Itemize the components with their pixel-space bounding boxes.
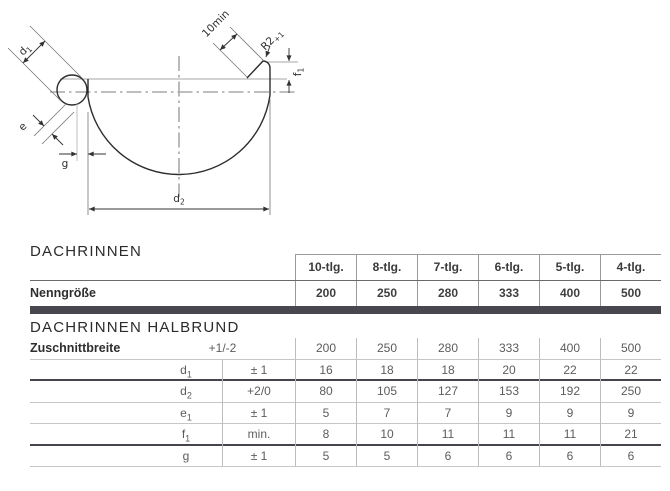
row-label [30, 446, 150, 467]
e-dimension-arrow [33, 115, 44, 126]
tolerance-value: +1/-2 [150, 338, 295, 359]
size-column-header: 4-tlg. [600, 255, 661, 280]
nenngroesse-row: Nenngröße 200250280333400500 [30, 281, 661, 306]
dimension-value: 250 [356, 338, 417, 359]
table-header-band: DACHRINNEN 10-tlg.8-tlg.7-tlg.6-tlg.5-tl… [30, 240, 661, 281]
e-extension-line [42, 112, 74, 144]
dimension-value: 6 [539, 446, 600, 467]
size-column-header: 6-tlg. [478, 255, 539, 280]
dimension-value: 5 [356, 446, 417, 467]
size-column-header: 5-tlg. [539, 255, 600, 280]
dimension-row-e1: e1± 1577999 [30, 403, 661, 425]
nenngroesse-value: 250 [356, 281, 417, 306]
hem-extension-line [213, 43, 247, 77]
size-column-header: 7-tlg. [417, 255, 478, 280]
d1-label: d1 [17, 41, 35, 59]
gutter-cross-section-diagram: d1 e g d2 10min R2+1 f1 [0, 0, 340, 235]
dimension-symbol: g [150, 446, 222, 467]
e-extension-line [34, 104, 66, 136]
e-dimension-arrow [52, 134, 63, 145]
size-column-header: 8-tlg. [356, 255, 417, 280]
dimension-row-zuschnittbreite: Zuschnittbreite+1/-2200250280333400500 [30, 338, 661, 360]
dimension-value: 400 [539, 338, 600, 359]
dimension-value: 6 [417, 446, 478, 467]
f1-label: f1 [292, 68, 306, 77]
row-label: Zuschnittbreite [30, 338, 150, 359]
nenngroesse-value: 500 [600, 281, 661, 306]
nenngroesse-value: 400 [539, 281, 600, 306]
datasheet-page: d1 e g d2 10min R2+1 f1 DACHRINNEN [0, 0, 670, 491]
dimension-value: 6 [600, 446, 661, 467]
dimension-tables: DACHRINNEN 10-tlg.8-tlg.7-tlg.6-tlg.5-tl… [30, 240, 661, 467]
dimension-value: 5 [295, 446, 356, 467]
section-title-dachrinnen: DACHRINNEN [30, 243, 142, 260]
section-divider-bar [30, 306, 661, 314]
hem-dimension-line [220, 34, 237, 50]
dimension-value: 500 [600, 338, 661, 359]
g-label: g [62, 158, 69, 170]
dimension-value: 280 [417, 338, 478, 359]
d1-extension-line [30, 26, 83, 79]
nenngroesse-value: 280 [417, 281, 478, 306]
size-column-header: 10-tlg. [295, 255, 356, 280]
dimension-row-g: g± 1556666 [30, 446, 661, 468]
dimension-value: 200 [295, 338, 356, 359]
dimension-row-d1: d1± 1161818202222 [30, 360, 661, 382]
dimension-row-f1: f1min.81011111121 [30, 424, 661, 446]
size-column-headers: 10-tlg.8-tlg.7-tlg.6-tlg.5-tlg.4-tlg. [295, 254, 661, 280]
tolerance-value: ± 1 [222, 446, 295, 467]
e-label: e [16, 120, 29, 133]
bead-circle [57, 75, 87, 105]
dimension-rows: Zuschnittbreite+1/-2200250280333400500d1… [30, 338, 661, 467]
section-title-halbrund: DACHRINNEN HALBRUND [30, 314, 661, 338]
hem-width-label: 10min [200, 8, 232, 40]
nenngroesse-value: 200 [295, 281, 356, 306]
d2-label: d2 [173, 193, 185, 207]
dimension-row-d2: d2+2/080105127153192250 [30, 381, 661, 403]
nenngroesse-value: 333 [478, 281, 539, 306]
dimension-value: 6 [478, 446, 539, 467]
dimension-value: 333 [478, 338, 539, 359]
r2-label: R2+1 [259, 27, 286, 54]
d1-extension-line [8, 48, 61, 101]
nenngroesse-label: Nenngröße [30, 281, 295, 306]
